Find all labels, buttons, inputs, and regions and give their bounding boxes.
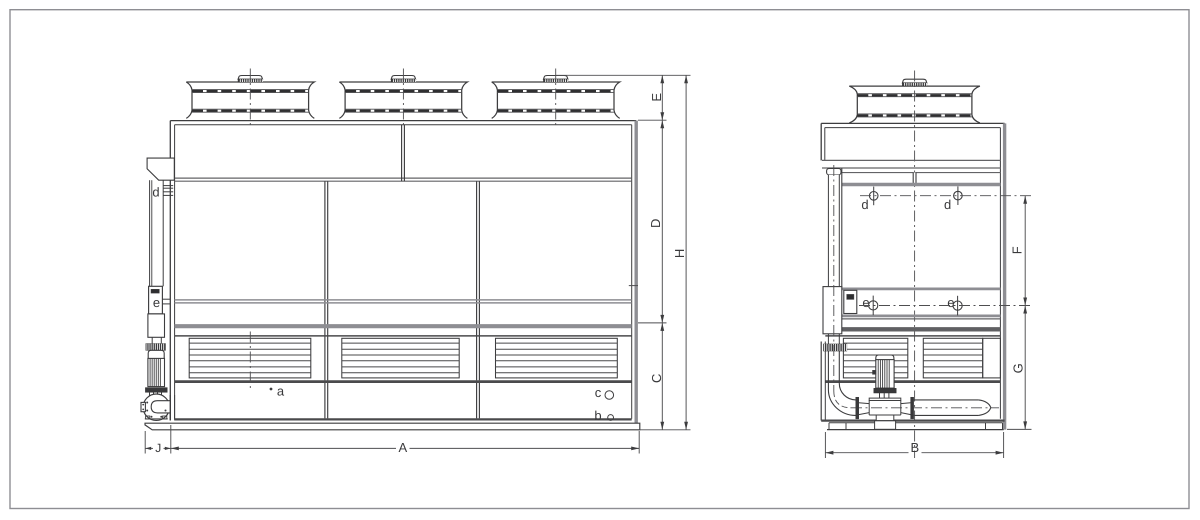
svg-text:A: A: [398, 440, 407, 455]
svg-text:C: C: [649, 374, 664, 383]
svg-text:D: D: [648, 219, 663, 228]
svg-text:e: e: [862, 295, 869, 310]
svg-text:d: d: [861, 197, 868, 212]
svg-text:J: J: [155, 441, 161, 455]
svg-text:d: d: [152, 185, 159, 200]
svg-text:B: B: [910, 440, 919, 455]
svg-text:d: d: [944, 197, 951, 212]
svg-text:H: H: [672, 249, 687, 258]
svg-text:G: G: [1010, 363, 1025, 373]
svg-text:e: e: [153, 295, 160, 310]
svg-text:c: c: [595, 385, 602, 400]
svg-text:b: b: [594, 408, 601, 423]
svg-text:E: E: [649, 93, 664, 102]
svg-text:a: a: [277, 384, 285, 399]
svg-text:F: F: [1010, 246, 1025, 254]
svg-text:e: e: [947, 295, 954, 310]
